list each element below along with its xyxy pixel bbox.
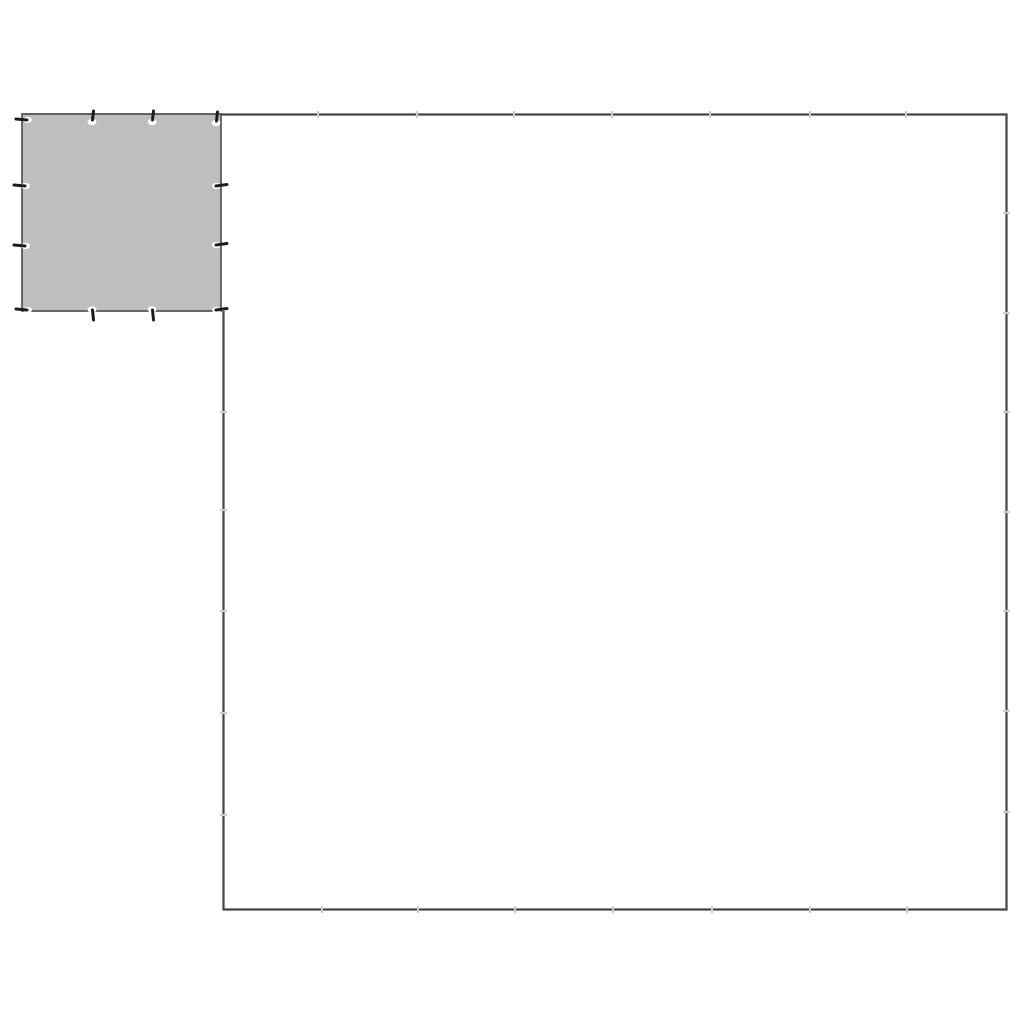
grommet-pin <box>93 310 94 320</box>
grommet-pin <box>16 119 27 120</box>
tarpaulin-size-comparison-diagram <box>0 0 1024 1024</box>
grommet-pin <box>217 112 218 121</box>
grommet-pin <box>216 309 227 311</box>
grommet-pin <box>16 309 27 310</box>
grommet-pin <box>216 244 227 246</box>
grommet-pin <box>14 245 25 246</box>
tarp-diagram-svg <box>0 0 1024 1024</box>
grommet-pin <box>93 111 94 120</box>
grommet-pin <box>153 111 154 120</box>
grommet-pin <box>216 185 227 187</box>
grommet-pin <box>14 185 25 186</box>
grommet-pin <box>153 310 154 320</box>
small-tarp <box>22 114 221 311</box>
